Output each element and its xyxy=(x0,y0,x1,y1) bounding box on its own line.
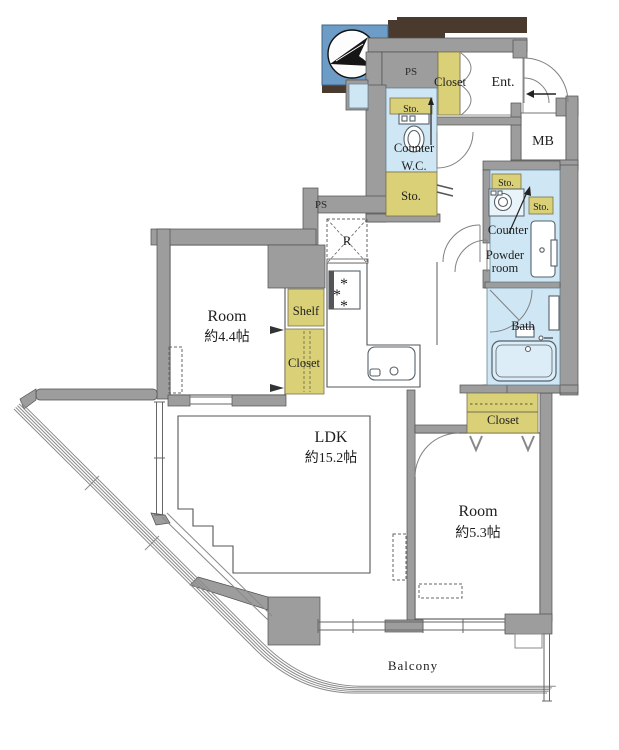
wc-door xyxy=(437,132,473,168)
closet-left-label: Closet xyxy=(288,356,320,370)
washbasin-icon xyxy=(531,221,557,277)
powder-storage-b-label: Sto. xyxy=(533,202,549,213)
ldk-dashed-unit xyxy=(393,534,406,580)
wc-label: W.C. xyxy=(401,159,426,173)
bath-label: Bath xyxy=(511,319,535,333)
kitchen-sink-icon xyxy=(368,347,415,380)
meter-box-label: MB xyxy=(532,134,554,149)
pillar xyxy=(268,597,320,645)
room-right-name: Room xyxy=(458,503,498,520)
entrance-closet-label: Closet xyxy=(434,75,466,89)
powder-room-label-1: Powder xyxy=(486,248,525,262)
balcony-label: Balcony xyxy=(388,658,438,673)
ldk-size: 約15.2帖 xyxy=(305,450,358,466)
svg-text:*: * xyxy=(340,298,348,315)
powder-storage-a-label: Sto. xyxy=(498,178,514,189)
entrance-label: Ent. xyxy=(492,75,515,90)
wc-counter-label: Counter xyxy=(394,141,435,155)
powder-room-label-2: room xyxy=(492,261,519,275)
balcony-unit-box xyxy=(515,634,542,648)
wc-storage-label: Sto. xyxy=(403,104,419,115)
ps-top-label: PS xyxy=(405,66,417,78)
entrance-door xyxy=(524,57,568,103)
room-left-name: Room xyxy=(207,308,247,325)
room-left-size: 約4.4帖 xyxy=(204,329,250,345)
ldk-name: LDK xyxy=(315,429,348,446)
ps-left-label: PS xyxy=(315,199,327,211)
svg-text:*: * xyxy=(340,276,348,293)
powder-counter-label: Counter xyxy=(488,223,529,237)
refrigerator-label: R xyxy=(343,234,352,248)
hall-door xyxy=(443,225,480,262)
powder-room-door xyxy=(455,240,487,272)
closet-right-label: Closet xyxy=(487,413,519,427)
pipe-space-box xyxy=(349,84,368,108)
shelf-label: Shelf xyxy=(293,304,320,318)
stove-icon: * * * xyxy=(329,271,360,315)
floor-plan: N xyxy=(0,0,619,750)
room-right-size: 約5.3帖 xyxy=(455,525,501,541)
floor-plan-svg: N xyxy=(0,0,619,750)
hall-storage-label: Sto. xyxy=(401,189,421,203)
